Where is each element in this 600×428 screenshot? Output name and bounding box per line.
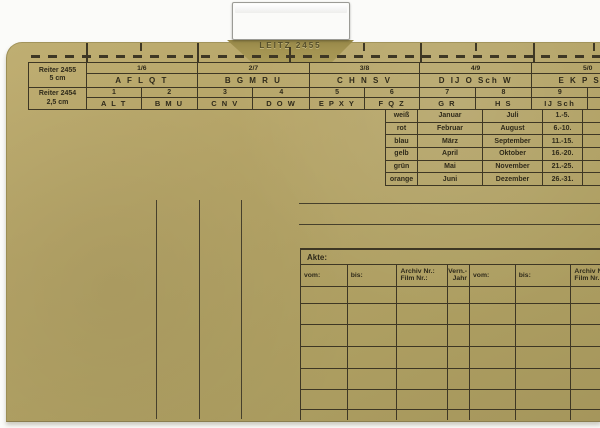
month-label: Dezember: [483, 173, 543, 185]
day-range: 6.-10.: [543, 123, 583, 135]
akte-empty-row: [301, 347, 600, 369]
empty-cell: [348, 287, 398, 303]
empty-cell: [397, 304, 448, 324]
empty-cell: [448, 410, 470, 420]
empty-cell: [448, 287, 470, 303]
empty-cell: [397, 410, 448, 420]
empty-cell: [516, 304, 572, 324]
number-label: 5: [310, 88, 365, 97]
empty-cell: [448, 390, 470, 409]
empty-cell: [516, 390, 572, 409]
akte-empty-row: [301, 410, 600, 420]
empty-cell: [571, 390, 600, 409]
empty-cell: [301, 325, 348, 346]
number-label: [588, 88, 600, 97]
number-label: 4: [253, 88, 310, 97]
empty-cell: [516, 325, 572, 346]
tab-position-label: 1/6: [87, 63, 198, 73]
empty-cell: [470, 369, 516, 389]
letter-group: A F L Q T: [87, 74, 198, 87]
day-range: 16.-20.: [543, 148, 583, 160]
akte-column-header: Vern.- Jahr: [448, 265, 470, 286]
month-label: Juni: [418, 173, 483, 185]
month-label: April: [418, 148, 483, 160]
number-label: 2: [142, 88, 198, 97]
month-label: Oktober: [483, 148, 543, 160]
akte-empty-row: [301, 390, 600, 410]
day-range: 1.-5.: [543, 110, 583, 122]
ruled-column-line: [156, 200, 157, 419]
reiter-label-line: Reiter 2455: [39, 67, 76, 76]
empty-cell: [448, 347, 470, 368]
reiter-label: Reiter 2455 5 cm: [29, 63, 86, 88]
tab-position-tick: [140, 43, 142, 51]
letter-group: E K P St X: [532, 74, 600, 87]
akte-empty-row: [301, 325, 600, 347]
day-range: 11.-15.: [543, 135, 583, 147]
ruled-column-line: [241, 200, 242, 419]
empty-cell: [397, 390, 448, 409]
letter-subgroup: E P X Y: [310, 98, 365, 109]
letter-subgroup: B M U: [142, 98, 198, 109]
fraction-row: 1/6 2/7 3/8 4/9 5/0: [87, 63, 600, 74]
column-boundary-mark: [420, 43, 422, 62]
empty-cell: [301, 287, 348, 303]
header-line: bis:: [351, 272, 397, 280]
empty-cell: [348, 410, 398, 420]
akte-column-header: bis:: [516, 265, 572, 286]
number-label: 6: [365, 88, 420, 97]
letter-subgroup: F Q Z: [365, 98, 420, 109]
empty-cell: [448, 304, 470, 324]
empty-cell: [470, 347, 516, 368]
empty-cell: [571, 325, 600, 346]
month-label: September: [483, 135, 543, 147]
empty-cell: [348, 304, 398, 324]
metal-tab-clip: [232, 2, 350, 40]
akte-column-header: vom:: [301, 265, 348, 286]
tab-position-tick: [363, 43, 365, 51]
month-label: März: [418, 135, 483, 147]
alphabet-index-table: Reiter 2455 5 cm Reiter 2454 2,5 cm 1/6 …: [28, 62, 600, 110]
empty-cell: [583, 123, 600, 135]
month-label: Februar: [418, 123, 483, 135]
header-line: Archiv Nr.:: [400, 268, 447, 276]
empty-cell: [470, 325, 516, 346]
empty-cell: [301, 369, 348, 389]
akte-empty-row: [301, 304, 600, 325]
letter-subgroup: [588, 98, 600, 109]
akte-column-header: Archiv Nr.: Film Nr.:: [397, 265, 448, 286]
reiter-label-line: 5 cm: [50, 75, 66, 84]
akte-table: Akte: vom: bis: Archiv Nr.: Film Nr.: Ve…: [300, 248, 600, 420]
empty-cell: [583, 135, 600, 147]
month-label: August: [483, 123, 543, 135]
color-month-row: orange Juni Dezember 26.-31.: [386, 173, 600, 185]
header-line: Film Nr.:: [574, 275, 600, 283]
color-month-row: rot Februar August 6.-10.: [386, 123, 600, 136]
day-range: 21.-25.: [543, 161, 583, 173]
tab-center-mark: [289, 47, 291, 62]
day-range: 26.-31.: [543, 173, 583, 185]
column-boundary-mark: [86, 43, 88, 62]
letter-subgroup: C N V: [198, 98, 254, 109]
clip-highlight: [235, 4, 347, 13]
letter-subgroup: G R: [420, 98, 476, 109]
header-line: Jahr: [453, 275, 467, 283]
reiter-label-column: Reiter 2455 5 cm Reiter 2454 2,5 cm: [29, 63, 87, 109]
empty-cell: [571, 304, 600, 324]
tab-embossed-label: LEITZ 2455: [259, 41, 321, 63]
empty-cell: [571, 410, 600, 420]
color-name: orange: [386, 173, 418, 185]
akte-title: Akte:: [301, 250, 600, 265]
tab-position-label: 3/8: [310, 63, 420, 73]
header-line: vom:: [304, 272, 347, 280]
header-line: vom:: [473, 272, 515, 280]
tab-position-tick: [475, 43, 477, 51]
letter-group: C H N S V: [310, 74, 420, 87]
writing-line: [299, 203, 600, 204]
color-name: grün: [386, 161, 418, 173]
akte-empty-row: [301, 369, 600, 390]
month-label: Mai: [418, 161, 483, 173]
reiter-label-line: 2,5 cm: [47, 99, 69, 108]
empty-cell: [301, 347, 348, 368]
letter-group-row: A F L Q T B G M R U C H N S V D IJ O Sch…: [87, 74, 600, 88]
akte-empty-row: [301, 287, 600, 304]
month-label: November: [483, 161, 543, 173]
empty-cell: [448, 369, 470, 389]
empty-cell: [583, 173, 600, 185]
empty-cell: [397, 369, 448, 389]
akte-column-header: Archiv Nr.: Film Nr.:: [571, 265, 600, 286]
empty-cell: [348, 347, 398, 368]
empty-cell: [397, 325, 448, 346]
writing-line: [299, 224, 600, 225]
empty-cell: [470, 287, 516, 303]
color-name: rot: [386, 123, 418, 135]
empty-cell: [301, 390, 348, 409]
color-month-row: weiß Januar Juli 1.-5.: [386, 110, 600, 123]
empty-cell: [516, 347, 572, 368]
perforation-dashes: [31, 55, 600, 58]
number-label: 9: [532, 88, 588, 97]
color-name: weiß: [386, 110, 418, 122]
header-line: Film Nr.:: [400, 275, 447, 283]
empty-cell: [516, 369, 572, 389]
tab-position-label: 5/0: [532, 63, 600, 73]
empty-cell: [516, 410, 572, 420]
header-line: Vern.-: [448, 268, 467, 276]
number-label: 3: [198, 88, 254, 97]
akte-column-header: vom:: [470, 265, 516, 286]
empty-cell: [470, 410, 516, 420]
color-month-table: weiß Januar Juli 1.-5. rot Februar Augus…: [385, 110, 600, 186]
number-label: 1: [87, 88, 142, 97]
empty-cell: [448, 325, 470, 346]
month-label: Januar: [418, 110, 483, 122]
empty-cell: [571, 347, 600, 368]
header-line: Archiv Nr.:: [574, 268, 600, 276]
reiter-label: Reiter 2454 2,5 cm: [29, 88, 86, 109]
akte-column-header: bis:: [348, 265, 398, 286]
empty-cell: [583, 110, 600, 122]
tab-position-label: 4/9: [420, 63, 533, 73]
letter-subgroup: H S: [476, 98, 533, 109]
letter-group: D IJ O Sch W: [420, 74, 533, 87]
empty-cell: [348, 325, 398, 346]
index-table-content: 1/6 2/7 3/8 4/9 5/0 A F L Q T B G M R U …: [87, 63, 600, 109]
empty-cell: [301, 410, 348, 420]
color-month-row: gelb April Oktober 16.-20.: [386, 148, 600, 161]
header-line: bis:: [519, 272, 571, 280]
letter-subgroup: D O W: [253, 98, 310, 109]
akte-body: [301, 287, 600, 420]
empty-cell: [470, 304, 516, 324]
empty-cell: [397, 347, 448, 368]
tab-position-label: 2/7: [198, 63, 311, 73]
color-month-row: blau März September 11.-15.: [386, 135, 600, 148]
empty-cell: [470, 390, 516, 409]
empty-cell: [301, 304, 348, 324]
subgroup-row: A L T B M U C N V D O W E P X Y F Q Z G …: [87, 98, 600, 109]
ruled-column-line: [199, 200, 200, 419]
empty-cell: [571, 287, 600, 303]
empty-cell: [571, 369, 600, 389]
color-month-row: grün Mai November 21.-25.: [386, 161, 600, 174]
month-label: Juli: [483, 110, 543, 122]
empty-cell: [583, 148, 600, 160]
akte-header-row: vom: bis: Archiv Nr.: Film Nr.: Vern.- J…: [301, 265, 600, 287]
letter-subgroup: IJ Sch: [532, 98, 588, 109]
empty-cell: [348, 390, 398, 409]
column-boundary-mark: [197, 43, 199, 62]
color-name: gelb: [386, 148, 418, 160]
empty-cell: [397, 287, 448, 303]
empty-cell: [516, 287, 572, 303]
number-label: 8: [476, 88, 533, 97]
tab-position-tick: [593, 43, 595, 51]
number-row: 1 2 3 4 5 6 7 8 9: [87, 88, 600, 98]
letter-subgroup: A L T: [87, 98, 142, 109]
empty-cell: [348, 369, 398, 389]
letter-group: B G M R U: [198, 74, 311, 87]
empty-cell: [583, 161, 600, 173]
number-label: 7: [420, 88, 476, 97]
reiter-label-line: Reiter 2454: [39, 90, 76, 99]
column-boundary-mark: [533, 43, 535, 62]
color-name: blau: [386, 135, 418, 147]
